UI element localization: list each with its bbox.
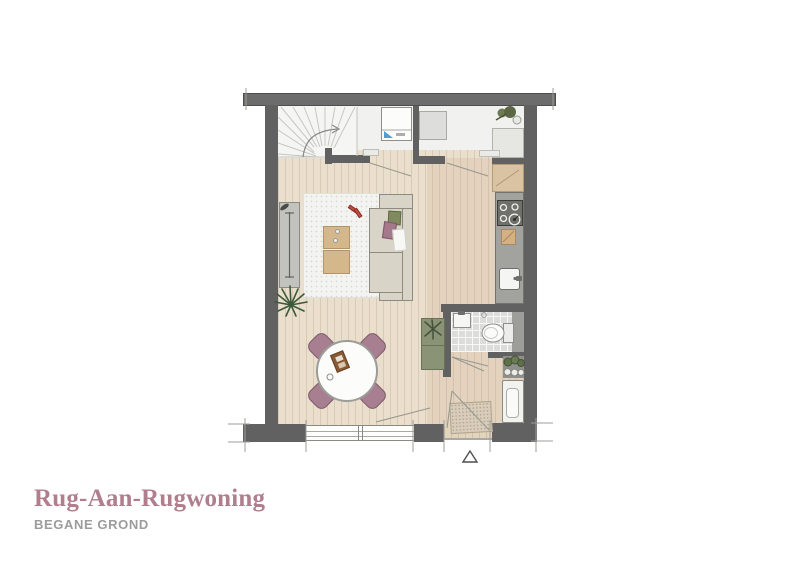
window [306, 425, 414, 441]
floorplan-page: Rug-Aan-Rugwoning BEGANE GROND [0, 0, 800, 568]
tray-item [338, 361, 346, 368]
boiler-unit [419, 111, 447, 140]
toilet-cistern [503, 323, 514, 343]
cutting-board [501, 229, 516, 245]
coffee-table [323, 250, 350, 274]
plan-title: Rug-Aan-Rugwoning [34, 485, 265, 512]
wall-bottom-left [243, 424, 306, 442]
sofa-throw [392, 228, 407, 251]
sofa-seat-lower [369, 252, 403, 293]
sofa-foot [379, 292, 403, 301]
hall-shelf [503, 356, 524, 378]
window-mullion [358, 426, 363, 440]
entrance-marker [463, 451, 477, 462]
cooktop [497, 200, 523, 226]
table-bowl [335, 229, 340, 234]
wall-bathroom-top [441, 304, 524, 312]
cabinet-divider [422, 345, 444, 346]
wash-basin [453, 313, 471, 328]
kitchen-upper-cabinet [492, 164, 524, 192]
doormat [449, 401, 493, 434]
wall-bottom-right [492, 423, 537, 442]
plan-subtitle: BEGANE GROND [34, 517, 265, 532]
sofa-chaise-top [379, 194, 413, 209]
door-threshold-right [479, 150, 500, 157]
staircase-area [277, 106, 357, 158]
storage-cabinet [421, 318, 445, 370]
sofa-backrest [402, 208, 413, 301]
table-bowl [333, 238, 338, 243]
wall-between-doors [413, 156, 445, 164]
wall-top-band [243, 93, 556, 106]
wall-stair-corner-h [325, 155, 370, 163]
radiator [279, 202, 300, 288]
wall-left [265, 105, 278, 425]
kitchen-sink [499, 268, 520, 290]
front-door-threshold [444, 438, 492, 440]
hall-radiator [502, 380, 524, 423]
door-threshold-left [363, 149, 379, 156]
hall-radiator-inner [506, 388, 519, 418]
caption-block: Rug-Aan-Rugwoning BEGANE GROND [34, 485, 265, 532]
wall-right [524, 105, 537, 423]
washing-machine [381, 107, 412, 141]
dining-table [316, 340, 378, 402]
wall-bottom-middle [414, 424, 444, 442]
